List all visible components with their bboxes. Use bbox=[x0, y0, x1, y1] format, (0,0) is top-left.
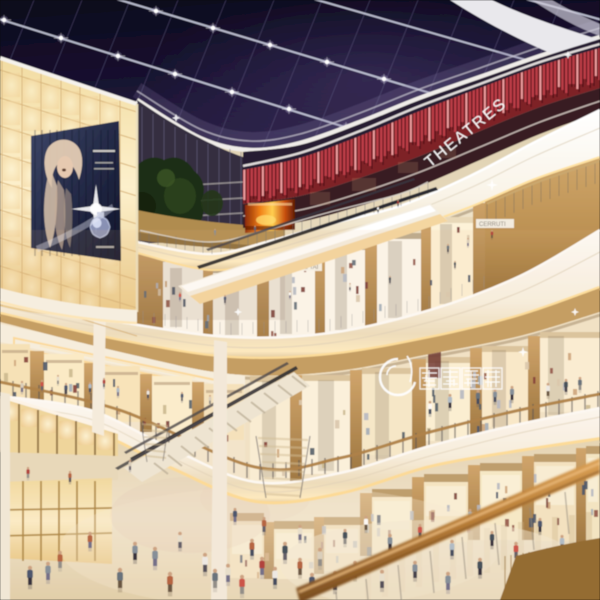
svg-text:CERRUTI: CERRUTI bbox=[479, 222, 506, 228]
